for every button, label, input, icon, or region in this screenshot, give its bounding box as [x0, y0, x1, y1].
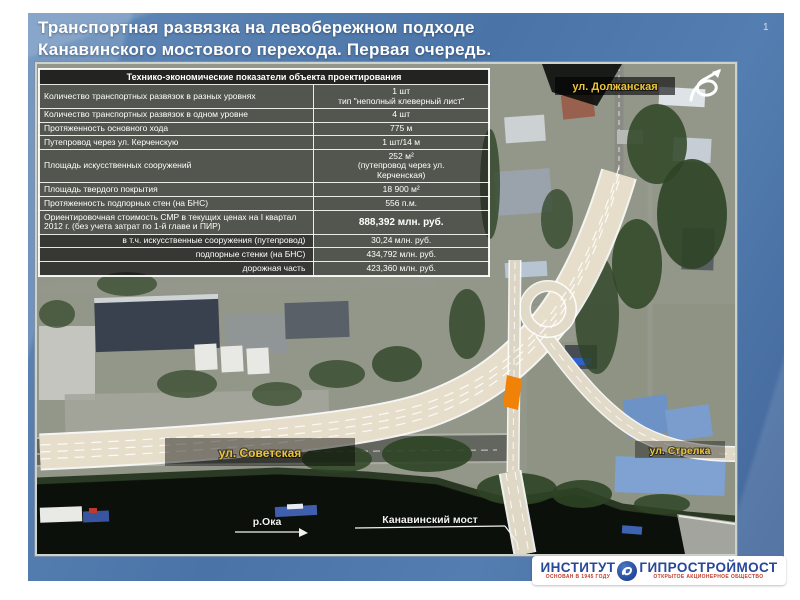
label-dolzhanskaya: ул. Должанская: [572, 81, 657, 93]
slide-page-number: 1: [763, 22, 769, 33]
row-label: в т.ч. искусственные сооружения (путепро…: [39, 234, 314, 248]
table-row: Количество транспортных развязок в разны…: [39, 85, 489, 109]
row-label: дорожная часть: [39, 262, 314, 276]
logo-word-institute: ИНСТИТУТ: [541, 561, 616, 575]
table-row: Площадь искусственных сооружений 252 м² …: [39, 150, 489, 183]
row-value: 18 900 м²: [314, 183, 489, 197]
row-label: Площадь искусственных сооружений: [39, 150, 314, 183]
table-header-row: Технико-экономические показатели объекта…: [39, 69, 489, 85]
row-value: 252 м² (путепровод через ул. Керченская): [314, 150, 489, 183]
logo-word-giprostroymost: ГИПРОСТРОЙМОСТ: [639, 561, 777, 575]
row-value: 888,392 млн. руб.: [314, 211, 489, 235]
row-label: Количество транспортных развязок в одном…: [39, 108, 314, 122]
logo-right-column: ГИПРОСТРОЙМОСТ ОТКРЫТОЕ АКЦИОНЕРНОЕ ОБЩЕ…: [639, 561, 777, 581]
slide-title: Транспортная развязка на левобережном по…: [38, 17, 678, 62]
row-value: 423,360 млн. руб.: [314, 262, 489, 276]
logo-subtext-company: ОТКРЫТОЕ АКЦИОНЕРНОЕ ОБЩЕСТВО: [653, 575, 763, 580]
table-title: Технико-экономические показатели объекта…: [39, 69, 489, 85]
table-row: Количество транспортных развязок в одном…: [39, 108, 489, 122]
logo-left-column: ИНСТИТУТ ОСНОВАН В 1945 ГОДУ: [541, 561, 616, 581]
label-sovetskaya: ул. Советская: [219, 446, 302, 460]
row-value: 1 шт тип "неполный клеверный лист": [314, 85, 489, 109]
row-label: Количество транспортных развязок в разны…: [39, 85, 314, 109]
label-river-oka: р.Ока: [253, 516, 282, 528]
slide-title-line2: Канавинского мостового перехода. Первая …: [38, 39, 678, 61]
table-row: Протяженность подпорных стен (на БНС) 55…: [39, 197, 489, 211]
gipostroymost-logo: ИНСТИТУТ ОСНОВАН В 1945 ГОДУ ГИПРОСТРОЙМ…: [532, 556, 786, 585]
row-value: 1 шт/14 м: [314, 136, 489, 150]
row-value: 30,24 млн. руб.: [314, 234, 489, 248]
logo-subtext-founded: ОСНОВАН В 1945 ГОДУ: [546, 575, 610, 580]
row-label: подпорные стенки (на БНС): [39, 248, 314, 262]
table-row: Площадь твердого покрытия 18 900 м²: [39, 183, 489, 197]
slide-title-line1: Транспортная развязка на левобережном по…: [38, 17, 678, 39]
row-label: Путепровод через ул. Керченскую: [39, 136, 314, 150]
row-value: 556 п.м.: [314, 197, 489, 211]
logo-mark-icon: [617, 561, 637, 581]
table-row: Протяженность основного хода 775 м: [39, 122, 489, 136]
row-label: Ориентировочная стоимость СМР в текущих …: [39, 211, 314, 235]
table-row: Путепровод через ул. Керченскую 1 шт/14 …: [39, 136, 489, 150]
label-kanavinsky-bridge: Канавинский мост: [382, 514, 478, 526]
row-value: 4 шт: [314, 108, 489, 122]
label-strelka: ул. Стрелка: [650, 445, 711, 457]
row-label: Протяженность подпорных стен (на БНС): [39, 197, 314, 211]
slide: Транспортная развязка на левобережном по…: [28, 13, 784, 581]
page: Транспортная развязка на левобережном по…: [0, 0, 800, 600]
table-row-sub: дорожная часть 423,360 млн. руб.: [39, 262, 489, 276]
table-row-total: Ориентировочная стоимость СМР в текущих …: [39, 211, 489, 235]
indicators-table: Технико-экономические показатели объекта…: [38, 68, 490, 277]
row-value: 775 м: [314, 122, 489, 136]
row-value: 434,792 млн. руб.: [314, 248, 489, 262]
row-label: Протяженность основного хода: [39, 122, 314, 136]
table-row-sub: в т.ч. искусственные сооружения (путепро…: [39, 234, 489, 248]
table-row-sub: подпорные стенки (на БНС) 434,792 млн. р…: [39, 248, 489, 262]
row-label: Площадь твердого покрытия: [39, 183, 314, 197]
